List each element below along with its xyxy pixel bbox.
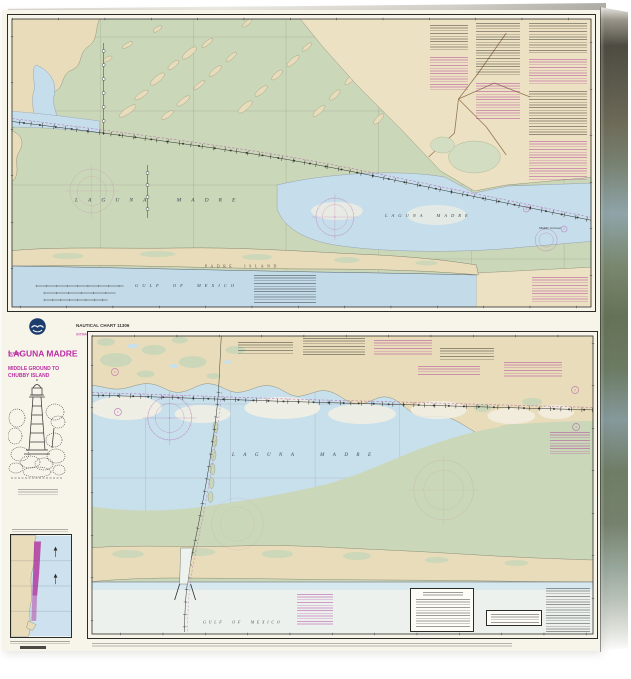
- map-label-laguna-madre-bottom: LAGUNA MADRE: [232, 447, 527, 465]
- chart-info-block: [529, 23, 587, 53]
- note-box: [486, 610, 542, 626]
- chart-print-face: LAGUNA MADRE LAGUNA MADRE PADRE ISLAND G…: [2, 10, 600, 651]
- note-text-block: [430, 57, 468, 91]
- bottom-chart-panel: LAGUNA MADRE GULF OF MEXICO: [87, 331, 598, 639]
- index-map-caption-bottom: [10, 641, 70, 644]
- note-text-block: [238, 342, 293, 355]
- map-label-middle-ground: Middle Ground: [539, 219, 582, 237]
- map-label-laguna-madre-east: LAGUNA MADRE: [385, 208, 559, 226]
- top-chart-panel: LAGUNA MADRE LAGUNA MADRE PADRE ISLAND G…: [7, 14, 596, 312]
- lighthouse-caption: [18, 489, 58, 497]
- note-text-block: [254, 275, 316, 303]
- index-map-bar: [20, 646, 46, 649]
- tide-table: [410, 588, 474, 632]
- product-photo: LAGUNA MADRE LAGUNA MADRE PADRE ISLAND G…: [0, 0, 631, 679]
- note-text-block: [297, 594, 333, 626]
- note-text-block: [476, 83, 520, 121]
- note-text-block: [303, 338, 365, 355]
- note-text-block: [440, 348, 494, 361]
- note-text-block: [476, 23, 520, 77]
- note-text-block: [532, 277, 588, 303]
- map-label-padre-island: PADRE ISLAND: [205, 258, 355, 276]
- bottom-chart-map: [88, 332, 597, 638]
- note-text-block: [504, 362, 562, 377]
- note-text-block: [546, 588, 590, 632]
- note-text-block: [430, 25, 468, 51]
- map-label-laguna-madre-west: LAGUNA MADRE: [75, 193, 416, 211]
- note-text-block: [529, 59, 587, 85]
- credit-line: [92, 643, 512, 648]
- note-text-block: [529, 141, 587, 181]
- index-map: [10, 534, 72, 638]
- index-map-caption-top: [12, 529, 68, 532]
- map-label-gulf-of-mexico-bottom: GULF OF MEXICO: [203, 614, 362, 632]
- note-text-block: [550, 432, 590, 454]
- lighthouse-illustration: [8, 378, 66, 484]
- note-text-block: [374, 340, 432, 355]
- noaa-logo: [29, 318, 46, 335]
- acrylic-right-edge: [600, 7, 628, 652]
- note-text-block: [529, 91, 587, 135]
- note-text-block: [418, 366, 480, 377]
